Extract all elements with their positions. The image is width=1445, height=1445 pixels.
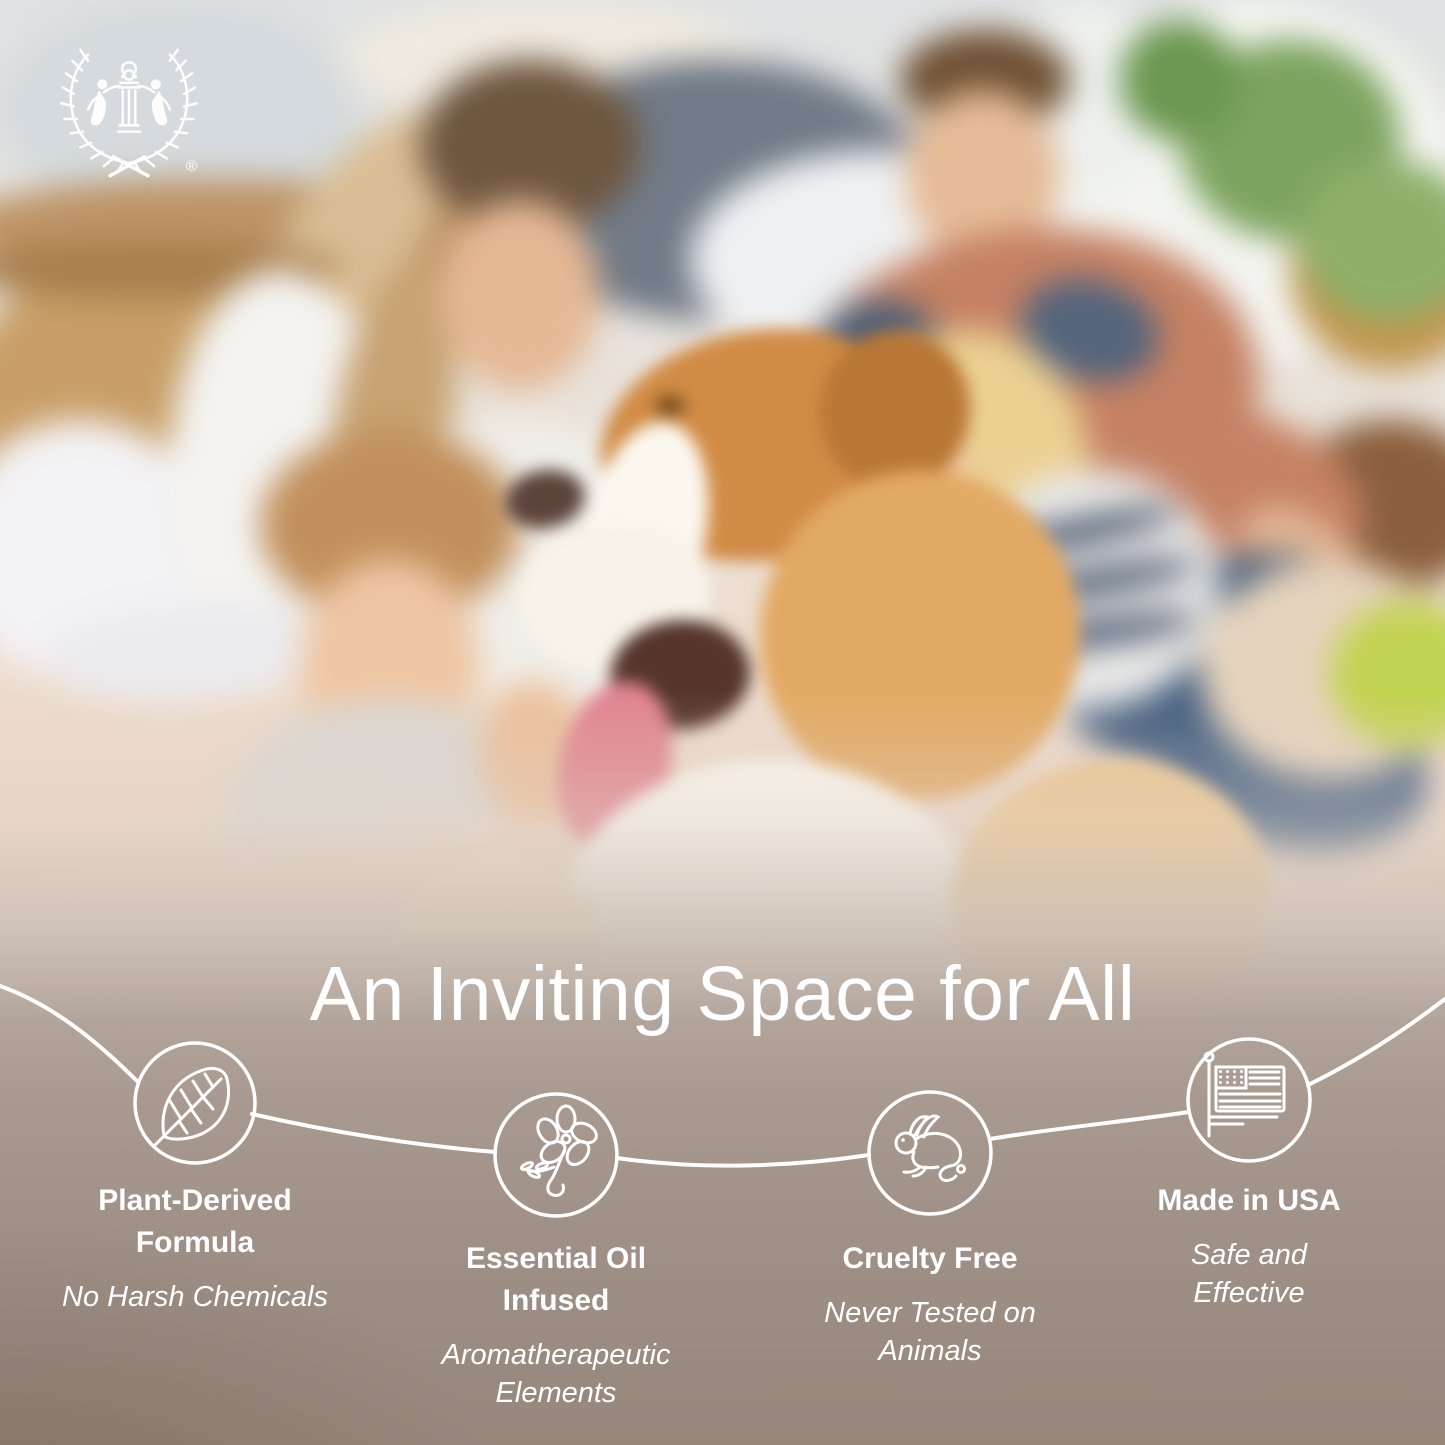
- headline: An Inviting Space for All: [0, 952, 1445, 1036]
- feature-subtitle: Never Tested on Animals: [820, 1294, 1040, 1370]
- family-photo: [0, 0, 1445, 1020]
- leaf-icon: [154, 1068, 229, 1146]
- usa-flag-icon: [1205, 1053, 1284, 1136]
- feature-subtitle: Aromatherapeutic Elements: [431, 1336, 681, 1412]
- feature-title: Cruelty Free: [770, 1238, 1090, 1280]
- registered-trademark: ®: [186, 158, 197, 175]
- feature-title: Made in USA: [1089, 1180, 1409, 1222]
- flower-icon: [521, 1106, 600, 1195]
- feature-circle-4: [1188, 1039, 1310, 1161]
- feature-plant-derived: Plant-Derived Formula No Harsh Chemicals: [35, 1180, 355, 1316]
- feature-title: Plant-Derived Formula: [80, 1180, 310, 1264]
- feature-circle-1: [135, 1043, 255, 1163]
- brand-logo: [50, 34, 208, 182]
- column-icon: [118, 62, 140, 131]
- feature-made-in-usa: Made in USA Safe and Effective: [1089, 1180, 1409, 1312]
- feature-cruelty-free: Cruelty Free Never Tested on Animals: [770, 1238, 1090, 1370]
- rabbit-icon: [896, 1116, 965, 1180]
- dog-eye: [655, 395, 685, 417]
- product-infographic: ® An Inviting Space for All: [0, 0, 1445, 1445]
- feature-subtitle: No Harsh Chemicals: [35, 1278, 355, 1316]
- feature-circle-2: [495, 1094, 617, 1216]
- dog-nose: [501, 463, 590, 534]
- feature-subtitle: Safe and Effective: [1174, 1236, 1324, 1312]
- feature-essential-oil: Essential Oil Infused Aromatherapeutic E…: [396, 1238, 716, 1412]
- feature-circle-3: [869, 1092, 991, 1214]
- feature-title: Essential Oil Infused: [451, 1238, 661, 1322]
